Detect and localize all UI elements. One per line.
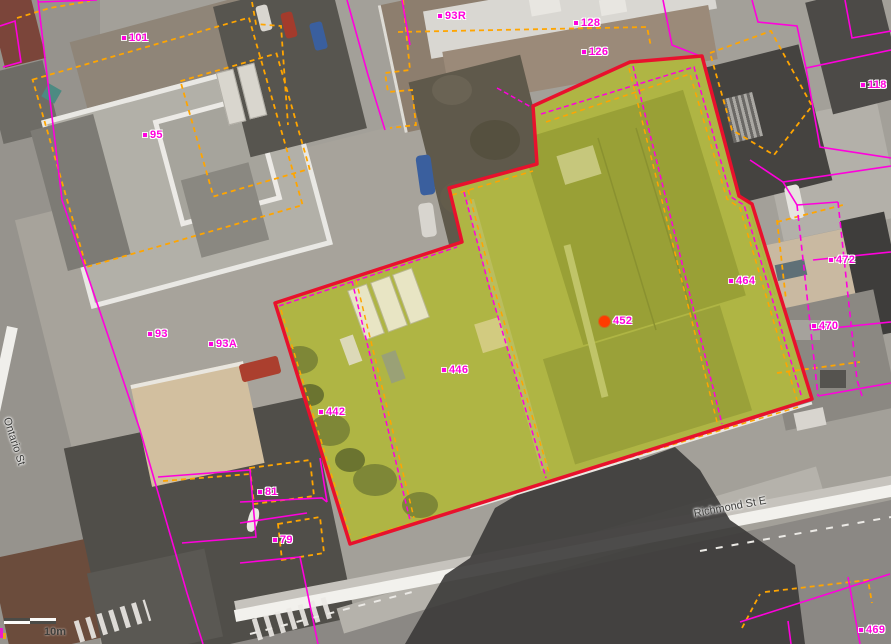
parcel-label-101[interactable]: 101 bbox=[122, 30, 148, 46]
parcel-point-icon bbox=[148, 332, 152, 336]
parcel-label-95[interactable]: 95 bbox=[143, 127, 163, 143]
parcel-point-icon bbox=[574, 21, 578, 25]
parcel-label-93r[interactable]: 93R bbox=[438, 8, 466, 24]
parcel-label-446[interactable]: 446 bbox=[442, 362, 468, 378]
parcel-point-icon bbox=[812, 324, 816, 328]
parcel-point-icon bbox=[438, 14, 442, 18]
parcel-point-icon bbox=[273, 538, 277, 542]
parcel-label-81[interactable]: 81 bbox=[258, 484, 278, 500]
parcel-label-464[interactable]: 464 bbox=[729, 273, 755, 289]
parcel-point-icon bbox=[859, 628, 863, 632]
parcel-point-icon bbox=[258, 490, 262, 494]
scale-bar-segment bbox=[30, 621, 56, 624]
parcel-label-472[interactable]: 472 bbox=[829, 252, 855, 268]
parcel-point-icon bbox=[582, 50, 586, 54]
parcel-point-icon bbox=[209, 342, 213, 346]
parcel-point-icon bbox=[319, 410, 323, 414]
parcel-label-469[interactable]: 469 bbox=[859, 622, 885, 638]
parcel-label-126[interactable]: 126 bbox=[582, 44, 608, 60]
parcel-point-icon bbox=[122, 36, 126, 40]
scale-bar-label: 10m bbox=[44, 626, 66, 638]
parcel-label-93a[interactable]: 93A bbox=[209, 336, 237, 352]
parcel-label-470[interactable]: 470 bbox=[812, 318, 838, 334]
parcel-label-79[interactable]: 79 bbox=[273, 532, 293, 548]
aerial-map-canvas[interactable]: Richmond St E Ontario St bbox=[0, 0, 891, 644]
scale-bar-segment bbox=[4, 621, 30, 624]
selected-point-icon bbox=[599, 316, 610, 327]
parcel-point-icon bbox=[729, 279, 733, 283]
parcel-label-128[interactable]: 128 bbox=[574, 15, 600, 31]
parcel-point-icon bbox=[143, 133, 147, 137]
parcel-label-452-selected[interactable]: 452 bbox=[599, 313, 632, 329]
parcel-point-icon bbox=[829, 258, 833, 262]
parcel-point-icon bbox=[861, 83, 865, 87]
parcel-point-icon bbox=[442, 368, 446, 372]
parcel-label-118[interactable]: 118 bbox=[861, 77, 887, 93]
gis-overlay bbox=[0, 0, 891, 644]
scale-bar bbox=[4, 618, 56, 624]
parcel-label-442[interactable]: 442 bbox=[319, 404, 345, 420]
parcel-label-93[interactable]: 93 bbox=[148, 326, 168, 342]
